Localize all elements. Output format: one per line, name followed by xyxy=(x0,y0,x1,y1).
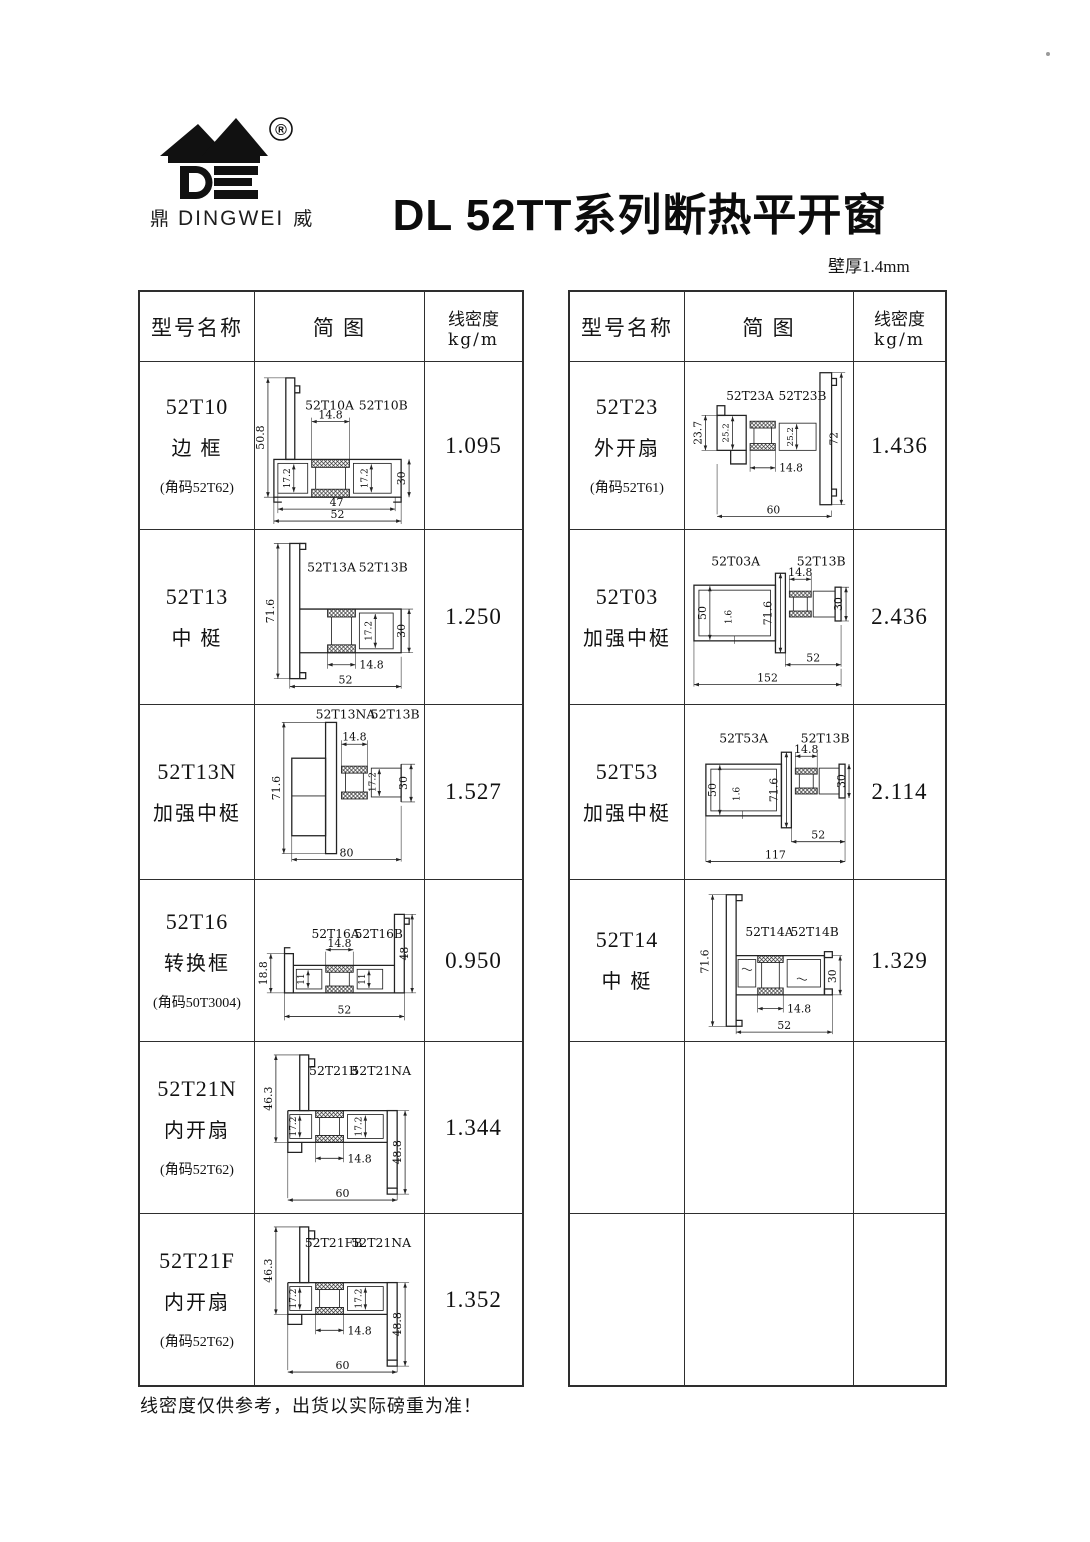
model-cell-empty-2 xyxy=(570,1214,685,1385)
dim-gap: 14.8 xyxy=(787,1003,811,1016)
dim-h-right: 48 xyxy=(398,947,411,961)
dim-cav-l: 25.2 xyxy=(722,423,732,442)
dim-box-h: 50 xyxy=(706,783,719,797)
dim-cav-l: 17.2 xyxy=(289,1117,299,1137)
diagram-cell-empty-2 xyxy=(685,1214,854,1385)
dim-h-left: 71.6 xyxy=(264,599,277,623)
model-cell-empty-1 xyxy=(570,1042,685,1214)
right-profile-table: 型号名称 简 图 线密度kg/m 52T23 外开扇 (角码52T61) xyxy=(568,290,947,1387)
dim-cav-l: 11 xyxy=(297,974,307,985)
dim-cav-r: 11 xyxy=(358,974,368,985)
density-cell-52T14: 1.329 xyxy=(854,880,945,1042)
dim-w-total: 117 xyxy=(765,849,786,862)
diagram-cell-52T23: 23.7 52T23A 52T23B 25.2 25.2 72 14.8 60 xyxy=(685,362,854,530)
profile-label-b: 52T14B xyxy=(790,925,838,939)
profile-outline xyxy=(726,895,832,1027)
diagram-cell-52T13: 71.6 52T13A 52T13B 17.2 30 14.8 52 xyxy=(255,530,425,705)
wall-thickness-note: 壁厚1.4mm xyxy=(828,252,910,277)
right-header-diagram: 简 图 xyxy=(685,292,854,362)
dimensions: 52T53A 52T13B 14.8 50 1.6 71.6 30 52 117 xyxy=(706,730,850,861)
dim-gap: 14.8 xyxy=(342,730,366,743)
dim-cav-l: 17.2 xyxy=(289,1289,299,1309)
density-cell-52T16: 0.950 xyxy=(425,880,522,1042)
dim-w-total: 52 xyxy=(338,1004,352,1017)
dim-gap: 14.8 xyxy=(788,566,812,579)
dimensions: 46.3 52T21B 52T21NA 17.2 17.2 48.8 14.8 … xyxy=(262,1055,412,1200)
diagram-52T13N: 52T13NA 52T13B 14.8 71.6 17.2 30 80 xyxy=(256,706,423,878)
dim-h-right: 48.8 xyxy=(391,1312,404,1336)
dim-h-left: 46.3 xyxy=(262,1086,275,1110)
dim-w-total: 52 xyxy=(339,674,353,687)
diagram-cell-empty-1 xyxy=(685,1042,854,1214)
density-cell-52T53: 2.114 xyxy=(854,705,945,880)
profile-label-b: 52T21NA xyxy=(351,1235,412,1250)
diagram-cell-52T14: 71.6 52T14A 52T14B 30 14.8 52 xyxy=(685,880,854,1042)
catalog-page: ® 鼎 DINGWEI 威 DL 52TT系列断热平开窗 壁厚1.4mm 型号名… xyxy=(0,0,1090,1542)
density-cell-empty-2 xyxy=(854,1214,945,1385)
density-cell-52T13: 1.250 xyxy=(425,530,522,705)
dim-cav-r: 25.2 xyxy=(786,427,796,446)
model-cell-52T10: 52T10 边 框 (角码52T62) xyxy=(140,362,255,530)
profile-label-a: 52T03A xyxy=(711,553,761,568)
diagram-cell-52T16: 18.8 52T16A 52T16B 14.8 11 11 48 52 xyxy=(255,880,425,1042)
density-cell-52T13N: 1.527 xyxy=(425,705,522,880)
profile-label-a: 52T13NA xyxy=(316,706,377,721)
brand-cn-left: 鼎 xyxy=(150,204,169,231)
profile-label-a: 52T53A xyxy=(719,730,769,745)
diagram-52T03: 52T03A 52T13B 14.8 50 1.6 71.6 30 52 152 xyxy=(686,531,852,703)
dim-w-part: 52 xyxy=(806,652,820,665)
profile-label-a: 52T13A xyxy=(307,559,357,574)
dim-h-left: 50.8 xyxy=(256,425,267,449)
profile-label-a: 52T14A xyxy=(745,925,793,939)
model-cell-52T13: 52T13 中 梃 xyxy=(140,530,255,705)
dim-h-left: 71.6 xyxy=(767,778,780,802)
model-cell-52T53: 52T53 加强中梃 xyxy=(570,705,685,880)
page-title: DL 52TT系列断热平开窗 xyxy=(340,179,940,243)
dim-h-left: 18.8 xyxy=(257,961,270,985)
dim-h-left: 71.6 xyxy=(270,776,283,800)
right-header-density: 线密度kg/m xyxy=(854,292,945,362)
dim-gap: 14.8 xyxy=(327,937,351,950)
dim-cav-r: 17.2 xyxy=(354,1289,364,1309)
diagram-52T21N: 46.3 52T21B 52T21NA 17.2 17.2 48.8 14.8 … xyxy=(256,1043,423,1212)
dim-h-left: 71.6 xyxy=(699,949,712,973)
diagram-cell-52T03: 52T03A 52T13B 14.8 50 1.6 71.6 30 52 152 xyxy=(685,530,854,705)
dim-h-right: 30 xyxy=(395,624,408,638)
dim-w-total: 60 xyxy=(767,503,781,516)
diagram-52T23: 23.7 52T23A 52T23B 25.2 25.2 72 14.8 60 xyxy=(686,363,852,528)
dim-cav-r: 17.2 xyxy=(354,1117,364,1137)
model-cell-52T13N: 52T13N 加强中梃 xyxy=(140,705,255,880)
diagram-cell-52T21N: 46.3 52T21B 52T21NA 17.2 17.2 48.8 14.8 … xyxy=(255,1042,425,1214)
diagram-cell-52T53: 52T53A 52T13B 14.8 50 1.6 71.6 30 52 117 xyxy=(685,705,854,880)
density-cell-52T21N: 1.344 xyxy=(425,1042,522,1214)
profile-label-b: 52T16B xyxy=(355,927,403,941)
left-header-density: 线密度kg/m xyxy=(425,292,522,362)
left-header-diagram: 简 图 xyxy=(255,292,425,362)
footer-disclaimer: 线密度仅供参考，出货以实际磅重为准！ xyxy=(140,1392,482,1418)
right-header-model: 型号名称 xyxy=(570,292,685,362)
profile-label-b: 52T23B xyxy=(779,389,827,403)
dim-gap: 14.8 xyxy=(794,743,818,756)
dim-cav-l: 17.2 xyxy=(283,468,293,488)
registered-mark: ® xyxy=(270,118,292,140)
profile-label-b: 52T13B xyxy=(359,559,408,574)
diagram-cell-52T21F: 46.3 52T21FB 52T21NA 17.2 17.2 48.8 14.8… xyxy=(255,1214,425,1385)
model-cell-52T14: 52T14 中 梃 xyxy=(570,880,685,1042)
dim-h-right: 72 xyxy=(827,432,840,446)
diagram-52T14: 71.6 52T14A 52T14B 30 14.8 52 xyxy=(686,881,852,1040)
model-cell-52T21N: 52T21N 内开扇 (角码52T62) xyxy=(140,1042,255,1214)
density-cell-empty-1 xyxy=(854,1042,945,1214)
profile-label-b: 52T10B xyxy=(359,398,408,413)
density-cell-52T23: 1.436 xyxy=(854,362,945,530)
model-cell-52T21F: 52T21F 内开扇 (角码52T62) xyxy=(140,1214,255,1385)
brand-text: 鼎 DINGWEI 威 xyxy=(150,204,310,231)
profile-label-b: 52T13B xyxy=(371,706,420,721)
dim-h-right: 48.8 xyxy=(391,1140,404,1164)
dim-w-total: 152 xyxy=(757,672,778,685)
dim-h-left: 71.6 xyxy=(761,601,774,625)
dim-gap: 14.8 xyxy=(347,1324,371,1337)
dim-gap: 14.8 xyxy=(359,659,383,672)
left-profile-table: 型号名称 简 图 线密度kg/m 52T10 边 框 (角码52T62) xyxy=(138,290,524,1387)
dim-h-right: 30 xyxy=(397,776,410,790)
dim-h-right: 30 xyxy=(395,471,408,485)
model-cell-52T03: 52T03 加强中梃 xyxy=(570,530,685,705)
density-cell-52T21F: 1.352 xyxy=(425,1214,522,1385)
dim-w-part: 52 xyxy=(811,829,825,842)
diagram-52T53: 52T53A 52T13B 14.8 50 1.6 71.6 30 52 117 xyxy=(686,706,852,878)
dim-gap: 14.8 xyxy=(779,462,803,475)
dim-cav-r: 17.2 xyxy=(368,772,378,792)
logo-icon: ® xyxy=(150,116,300,202)
model-cell-52T16: 52T16 转换框 (角码50T3004) xyxy=(140,880,255,1042)
dim-w-total: 60 xyxy=(336,1187,350,1200)
density-cell-52T10: 1.095 xyxy=(425,362,522,530)
diagram-cell-52T13N: 52T13NA 52T13B 14.8 71.6 17.2 30 80 xyxy=(255,705,425,880)
dim-w-total: 60 xyxy=(336,1359,350,1372)
diagram-52T21F: 46.3 52T21FB 52T21NA 17.2 17.2 48.8 14.8… xyxy=(256,1215,423,1384)
diagram-52T13: 71.6 52T13A 52T13B 17.2 30 14.8 52 xyxy=(256,531,423,703)
dimensions: 52T03A 52T13B 14.8 50 1.6 71.6 30 52 152 xyxy=(694,553,849,686)
svg-text:®: ® xyxy=(275,122,287,139)
model-cell-52T23: 52T23 外开扇 (角码52T61) xyxy=(570,362,685,530)
dim-cav-r: 17.2 xyxy=(360,468,370,488)
profile-outline xyxy=(274,378,401,502)
brand-logo: ® 鼎 DINGWEI 威 xyxy=(150,116,300,236)
dim-h-left: 23.7 xyxy=(692,421,705,445)
left-header-model: 型号名称 xyxy=(140,292,255,362)
diagram-52T10: 50.8 52T10A 52T10B 14.8 17.2 17.2 30 47 … xyxy=(256,363,423,528)
scan-artifact-dot xyxy=(1046,52,1050,56)
dim-gap: 14.8 xyxy=(347,1152,371,1165)
dim-wall: 1.6 xyxy=(725,610,735,625)
profile-label-a: 52T23A xyxy=(726,389,774,403)
diagram-52T16: 18.8 52T16A 52T16B 14.8 11 11 48 52 xyxy=(256,881,423,1040)
dim-h-right: 30 xyxy=(835,774,848,788)
dim-w-total: 52 xyxy=(777,1019,791,1032)
dim-wall: 1.6 xyxy=(733,787,743,802)
dim-h-right: 30 xyxy=(826,969,839,983)
dim-gap: 14.8 xyxy=(318,409,342,422)
dim-w-total: 80 xyxy=(340,847,354,860)
dim-w-total: 52 xyxy=(331,508,345,521)
dimensions: 46.3 52T21FB 52T21NA 17.2 17.2 48.8 14.8… xyxy=(262,1227,412,1372)
dim-h-left: 46.3 xyxy=(262,1258,275,1282)
brand-en: DINGWEI xyxy=(178,207,284,231)
profile-label-b: 52T21NA xyxy=(351,1063,412,1078)
brand-cn-right: 威 xyxy=(293,204,312,231)
density-cell-52T03: 2.436 xyxy=(854,530,945,705)
dim-h-right: 30 xyxy=(832,597,845,611)
dim-cav-r: 17.2 xyxy=(364,621,374,641)
dim-box-h: 50 xyxy=(696,606,709,620)
diagram-cell-52T10: 50.8 52T10A 52T10B 14.8 17.2 17.2 30 47 … xyxy=(255,362,425,530)
